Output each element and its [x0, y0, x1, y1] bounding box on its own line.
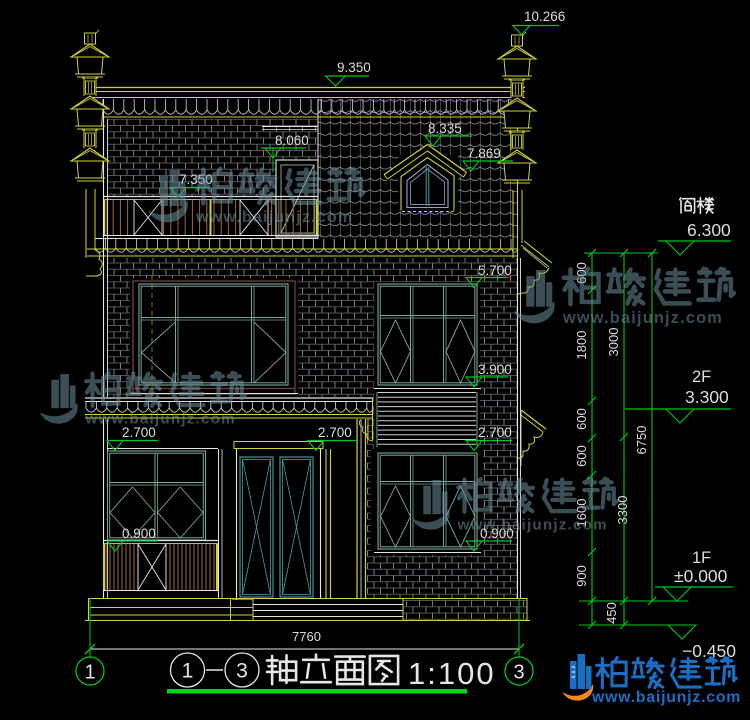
- svg-text:7.869: 7.869: [467, 146, 501, 161]
- svg-text:1800: 1800: [574, 331, 589, 360]
- svg-text:600: 600: [574, 445, 589, 467]
- svg-text:6750: 6750: [634, 426, 649, 455]
- svg-text:9.350: 9.350: [337, 60, 371, 75]
- svg-text:8.060: 8.060: [275, 133, 309, 148]
- svg-text:2F: 2F: [692, 368, 711, 386]
- svg-text:1F: 1F: [692, 549, 711, 567]
- svg-text:±0.000: ±0.000: [674, 566, 728, 586]
- svg-text:www.baijunjz.com: www.baijunjz.com: [85, 410, 236, 427]
- svg-text:0.900: 0.900: [122, 526, 156, 541]
- svg-text:600: 600: [574, 408, 589, 430]
- svg-text:450: 450: [604, 602, 619, 624]
- svg-text:www.baijunjz.com: www.baijunjz.com: [562, 309, 723, 327]
- svg-text:1:100: 1:100: [408, 656, 496, 691]
- svg-text:5.700: 5.700: [478, 263, 512, 278]
- svg-text:3.900: 3.900: [478, 362, 512, 377]
- svg-text:3: 3: [513, 662, 524, 684]
- svg-text:2.700: 2.700: [318, 425, 352, 440]
- svg-text:2.700: 2.700: [478, 425, 512, 440]
- svg-text:1: 1: [84, 662, 95, 684]
- svg-text:3: 3: [236, 660, 248, 683]
- svg-text:3000: 3000: [606, 328, 621, 357]
- svg-text:900: 900: [574, 565, 589, 587]
- svg-text:7760: 7760: [292, 629, 321, 644]
- svg-text:3.300: 3.300: [685, 387, 729, 407]
- svg-text:1: 1: [182, 660, 194, 683]
- svg-text:8.335: 8.335: [428, 121, 462, 136]
- svg-text:www.baijunjz.com: www.baijunjz.com: [195, 209, 353, 226]
- svg-text:www.baijunjz.com: www.baijunjz.com: [457, 516, 608, 533]
- svg-text:www.baijunjz.com: www.baijunjz.com: [591, 689, 741, 706]
- svg-text:10.266: 10.266: [524, 9, 565, 24]
- svg-text:6.300: 6.300: [687, 220, 731, 240]
